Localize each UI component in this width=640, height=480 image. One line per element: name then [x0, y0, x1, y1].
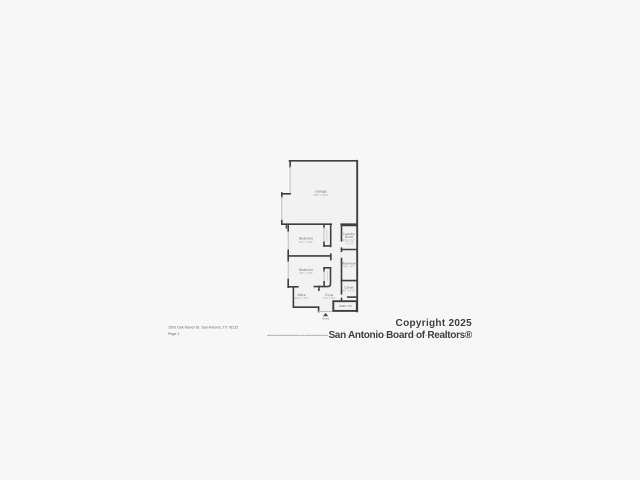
svg-text:4'9" x 4'11": 4'9" x 4'11" — [342, 289, 356, 293]
svg-text:4'9" x 7'4": 4'9" x 7'4" — [343, 238, 355, 242]
svg-text:20'8" x 19'4": 20'8" x 19'4" — [313, 193, 328, 197]
svg-text:1503 Oak Manor Dr, San Antonio: 1503 Oak Manor Dr, San Antonio, TX 78232 — [168, 326, 238, 330]
svg-text:10'2" x 6'2": 10'2" x 6'2" — [295, 296, 309, 300]
svg-text:5'4" x 6'2": 5'4" x 6'2" — [323, 296, 335, 300]
svg-text:Entry: Entry — [322, 316, 329, 320]
svg-text:Water Htr: Water Htr — [339, 304, 352, 308]
svg-text:13'7" x 9'8": 13'7" x 9'8" — [299, 271, 313, 275]
svg-text:4'9" x 9'7": 4'9" x 9'7" — [343, 265, 355, 269]
svg-text:13'7" x 9'11": 13'7" x 9'11" — [298, 240, 313, 244]
svg-text:Page 1: Page 1 — [168, 332, 179, 336]
